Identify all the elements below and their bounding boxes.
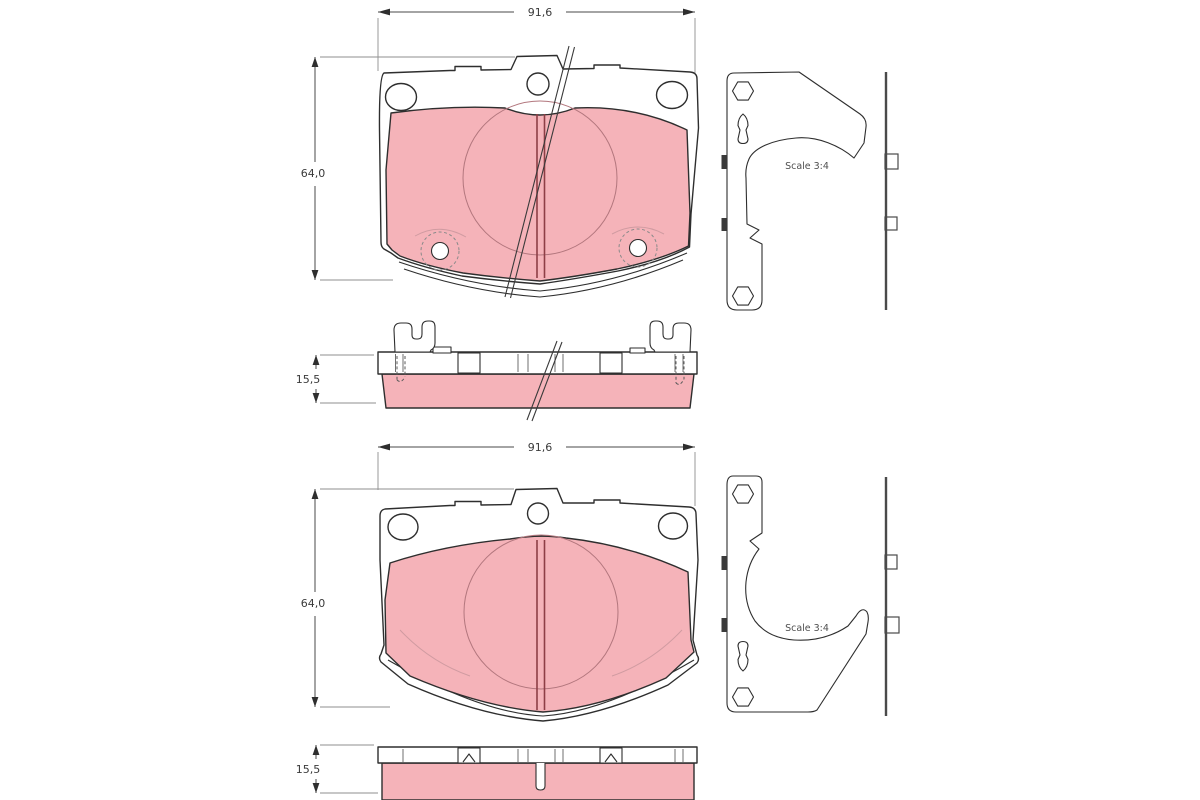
dim-thickness-bottom: 15,5 — [296, 745, 378, 793]
arrowhead-up — [312, 489, 319, 499]
bracket-outline — [727, 72, 866, 310]
arrowhead-left — [378, 9, 390, 16]
dimension-label-width-bottom: 91,6 — [528, 441, 553, 454]
caliper-bracket-top: Scale 3:4 — [722, 72, 867, 310]
arrowhead-right — [683, 9, 695, 16]
arrowhead-up — [313, 745, 320, 755]
dimension-label-height-top: 64,0 — [301, 167, 326, 180]
arrowhead-right — [683, 444, 695, 451]
bracket-tab-mark-lower — [722, 618, 728, 632]
arrowhead-down — [312, 270, 319, 280]
mounting-hole-left — [386, 84, 417, 111]
center-tab-hole — [528, 503, 549, 524]
friction-slot-notch — [536, 763, 545, 790]
scale-note-top: Scale 3:4 — [785, 161, 829, 172]
arrowhead-up — [312, 57, 319, 67]
arrowhead-down — [312, 697, 319, 707]
arrowhead-down — [313, 783, 320, 793]
bottom-pad-front-view — [380, 489, 699, 722]
mounting-hole-right — [657, 82, 688, 109]
dimension-label-height-bottom: 64,0 — [301, 597, 326, 610]
backing-plate-edge — [378, 352, 697, 374]
rivet-hole-left — [432, 243, 449, 260]
hex-hole-top — [733, 485, 754, 503]
keyhole-slot — [738, 642, 748, 672]
technical-drawing-page: 91,6 64,0 — [0, 0, 1200, 800]
abutment-notch-left — [458, 353, 480, 373]
caliper-bracket-bottom: Scale 3:4 — [722, 476, 869, 712]
hex-hole-bottom — [733, 287, 754, 305]
bracket-edge-view-bottom — [885, 477, 899, 716]
spring-clip-right — [650, 321, 691, 352]
plate-lug-right — [630, 348, 645, 353]
top-pad-front-view — [379, 46, 698, 298]
plate-lug-left — [433, 347, 451, 353]
arrowhead-left — [378, 444, 390, 451]
spring-clip-left — [394, 321, 435, 352]
bracket-edge-view-top — [885, 72, 898, 310]
bracket-tab-mark-upper — [722, 556, 728, 570]
dimension-label-thickness-top: 15,5 — [296, 373, 321, 386]
bracket-outline — [727, 476, 868, 712]
hex-hole-top — [733, 82, 754, 100]
backing-plate-edge — [378, 747, 697, 763]
bottom-assembly-view: 91,6 64,0 15,5 — [296, 441, 899, 800]
mounting-hole-left — [388, 514, 418, 540]
arrowhead-down — [313, 393, 320, 403]
top-assembly-view: 91,6 64,0 — [296, 6, 898, 421]
dim-thickness-top: 15,5 — [296, 355, 376, 403]
keyhole-slot — [738, 114, 748, 144]
mounting-hole-right — [659, 513, 688, 539]
brake-pad-technical-drawing: 91,6 64,0 — [0, 0, 1200, 800]
abutment-notch-right — [600, 353, 622, 373]
scale-note-bottom: Scale 3:4 — [785, 623, 829, 634]
arrowhead-up — [313, 355, 320, 365]
top-pad-side-view — [378, 321, 697, 421]
dimension-label-thickness-bottom: 15,5 — [296, 763, 321, 776]
bracket-tab-mark-upper — [722, 155, 728, 169]
hex-hole-bottom — [733, 688, 754, 706]
abutment-notch-right — [600, 748, 622, 763]
abutment-notch-left — [458, 748, 480, 763]
dimension-label-width-top: 91,6 — [528, 6, 553, 19]
rivet-hole-right — [630, 240, 647, 257]
center-tab-hole — [527, 73, 549, 95]
bottom-pad-side-view — [378, 747, 697, 800]
bracket-tab-mark-lower — [722, 218, 728, 231]
